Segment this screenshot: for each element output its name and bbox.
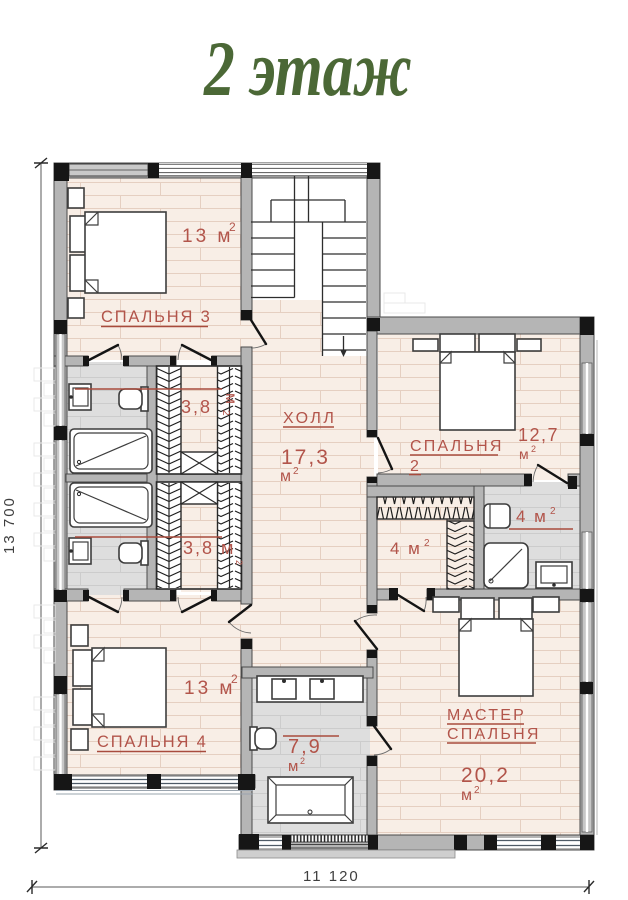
svg-text:СПАЛЬНЯ 4: СПАЛЬНЯ 4 [97,733,208,751]
svg-text:2: 2 [300,756,305,766]
svg-text:м: м [288,758,298,775]
svg-text:20,2: 20,2 [461,764,510,787]
svg-text:7,9: 7,9 [288,736,322,758]
svg-text:м: м [222,393,239,404]
svg-text:СПАЛЬНЯ: СПАЛЬНЯ [447,726,541,743]
svg-text:3,8 м: 3,8 м [183,538,235,558]
svg-text:2: 2 [231,672,238,686]
svg-text:МАСТЕР: МАСТЕР [447,707,526,724]
svg-text:17,3: 17,3 [281,446,330,469]
svg-text:2: 2 [229,220,236,234]
svg-text:13 м: 13 м [182,226,233,247]
svg-text:м: м [519,446,529,462]
svg-text:11 120: 11 120 [303,868,360,885]
svg-text:2: 2 [531,444,536,454]
svg-text:2 этаж: 2 этаж [203,25,412,112]
svg-text:12,7: 12,7 [518,425,559,445]
svg-text:13 м: 13 м [184,678,235,699]
svg-text:ХОЛЛ: ХОЛЛ [283,410,336,427]
svg-text:4 м: 4 м [390,539,422,558]
svg-text:2: 2 [550,506,556,517]
svg-text:2: 2 [410,458,419,475]
svg-text:СПАЛЬНЯ 3: СПАЛЬНЯ 3 [101,308,212,326]
svg-text:2: 2 [424,538,430,549]
svg-text:м: м [280,468,291,485]
svg-text:2: 2 [293,466,299,477]
svg-text:13 700: 13 700 [1,496,18,554]
svg-text:м: м [461,787,472,804]
svg-text:3,8: 3,8 [181,397,212,417]
svg-text:4 м: 4 м [516,507,548,526]
svg-text:2: 2 [234,560,244,565]
svg-text:СПАЛЬНЯ: СПАЛЬНЯ [410,438,504,455]
svg-text:2: 2 [220,410,231,416]
svg-text:2: 2 [474,785,480,796]
